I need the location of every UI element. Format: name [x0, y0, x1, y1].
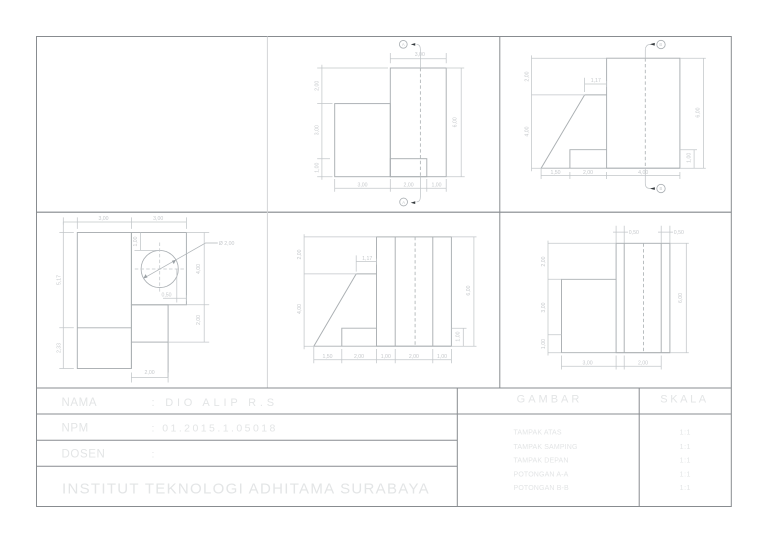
svg-text:3,00: 3,00: [541, 302, 547, 312]
svg-text:3,00: 3,00: [98, 216, 108, 222]
svg-text:1,17: 1,17: [362, 256, 372, 262]
svg-text:2,00: 2,00: [145, 370, 155, 376]
svg-text:B: B: [659, 42, 662, 47]
svg-text:INSTITUT TEKNOLOGI ADHITAMA SU: INSTITUT TEKNOLOGI ADHITAMA SURABAYA: [62, 480, 430, 497]
svg-text:1,00: 1,00: [541, 339, 547, 349]
svg-text:1,00: 1,00: [133, 236, 139, 246]
svg-text:TAMPAK DEPAN: TAMPAK DEPAN: [514, 458, 569, 465]
svg-text:POTONGAN A-A: POTONGAN A-A: [514, 472, 569, 479]
svg-text:2,00: 2,00: [583, 170, 593, 176]
svg-text:1,50: 1,50: [322, 354, 332, 360]
svg-text:2,33: 2,33: [56, 343, 62, 353]
svg-text:0,50: 0,50: [674, 230, 684, 236]
svg-text:2,00: 2,00: [541, 256, 547, 266]
svg-text:DOSEN: DOSEN: [62, 449, 106, 461]
svg-text:1,00: 1,00: [431, 182, 441, 188]
svg-text:TAMPAK ATAS: TAMPAK ATAS: [514, 430, 562, 437]
svg-text:6,00: 6,00: [466, 285, 472, 295]
svg-text:3,00: 3,00: [314, 125, 320, 135]
svg-text:3,00: 3,00: [357, 182, 367, 188]
svg-text:SKALA: SKALA: [660, 394, 708, 406]
svg-text:2,00: 2,00: [196, 315, 202, 325]
svg-text:4,00: 4,00: [196, 264, 202, 274]
svg-text:6,00: 6,00: [452, 117, 458, 127]
svg-text:2,00: 2,00: [638, 360, 648, 366]
svg-text:2,00: 2,00: [409, 354, 419, 360]
svg-text:NPM: NPM: [62, 422, 89, 434]
svg-text:2,00: 2,00: [297, 249, 303, 259]
svg-text:1,17: 1,17: [591, 78, 601, 84]
svg-text:NAMA: NAMA: [62, 397, 98, 409]
svg-text:TAMPAK SAMPING: TAMPAK SAMPING: [514, 444, 578, 451]
svg-text:5,17: 5,17: [56, 275, 62, 285]
svg-text:1,00: 1,00: [456, 331, 462, 341]
svg-text:Ø 2,00: Ø 2,00: [219, 241, 235, 247]
svg-text:1:1: 1:1: [680, 485, 691, 492]
svg-text:1,00: 1,00: [381, 354, 391, 360]
svg-text:1:1: 1:1: [680, 430, 691, 437]
svg-text:2,00: 2,00: [354, 354, 364, 360]
svg-text:6,00: 6,00: [678, 293, 684, 303]
svg-text:GAMBAR: GAMBAR: [517, 394, 583, 406]
svg-text:1:1: 1:1: [680, 444, 691, 451]
svg-text:0,50: 0,50: [161, 293, 171, 299]
svg-text:A: A: [402, 42, 405, 47]
svg-text:POTONGAN B-B: POTONGAN B-B: [514, 485, 570, 492]
svg-text:1:1: 1:1: [680, 458, 691, 465]
svg-text:1:1: 1:1: [680, 472, 691, 479]
svg-text:4,00: 4,00: [297, 304, 303, 314]
svg-text:A: A: [402, 200, 405, 205]
svg-text:: 01.2015.1.05018: : 01.2015.1.05018: [152, 422, 278, 434]
svg-text:2,00: 2,00: [314, 81, 320, 91]
svg-text:1,50: 1,50: [550, 170, 560, 176]
svg-text:1,00: 1,00: [437, 354, 447, 360]
svg-text:B: B: [660, 186, 663, 191]
svg-text:6,00: 6,00: [695, 107, 701, 117]
svg-text:4,00: 4,00: [525, 126, 531, 136]
svg-text::: :: [152, 449, 157, 461]
svg-text:1,00: 1,00: [314, 163, 320, 173]
svg-text:: DIO ALIP R.S: : DIO ALIP R.S: [152, 397, 278, 409]
svg-text:3,00: 3,00: [583, 360, 593, 366]
svg-text:3,00: 3,00: [153, 216, 163, 222]
svg-text:4,00: 4,00: [638, 170, 648, 176]
svg-text:3,00: 3,00: [415, 52, 425, 58]
svg-text:1,00: 1,00: [686, 153, 692, 163]
svg-text:2,00: 2,00: [404, 182, 414, 188]
svg-text:0,50: 0,50: [629, 230, 639, 236]
svg-text:2,00: 2,00: [525, 71, 531, 81]
